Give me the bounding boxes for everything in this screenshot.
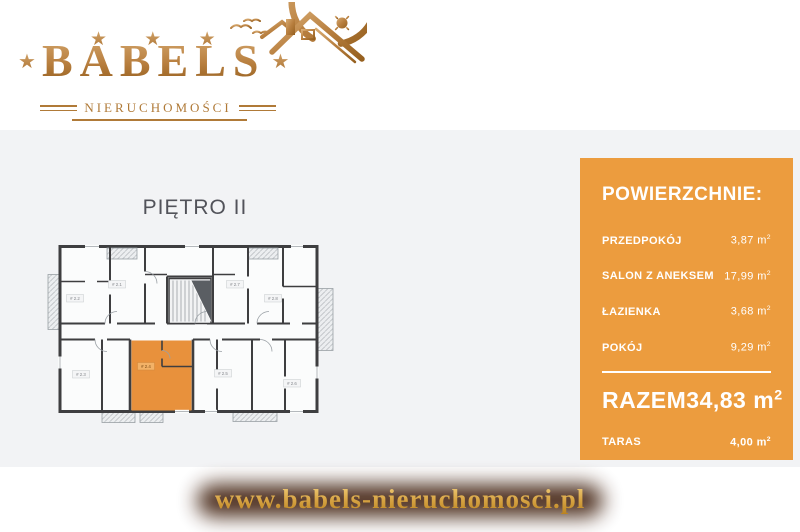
- area-value: 9,29 m2: [731, 341, 771, 354]
- terrace-value: 4,00 m2: [730, 436, 771, 449]
- terrace-label: TARAS: [602, 436, 641, 448]
- room-label: # 2.7: [230, 282, 240, 287]
- sun-icon: [333, 14, 351, 32]
- area-value: 3,87 m2: [731, 234, 771, 247]
- highlighted-apartment[interactable]: [132, 341, 192, 411]
- website-url[interactable]: www.babels-nieruchomosci.pl: [205, 482, 596, 517]
- total-value: 34,83 m2: [686, 387, 782, 414]
- area-label: PRZEDPOKÓJ: [602, 235, 682, 247]
- area-label: ŁAZIENKA: [602, 306, 661, 318]
- room-label: # 2.2: [70, 296, 80, 301]
- floor-plan: # 2.2 # 2.1 # 2.7 # 2.8 # 2.3 # 2.4 # 2.…: [45, 224, 345, 429]
- room-label: # 2.3: [76, 372, 86, 377]
- room-label: # 2.1: [112, 282, 122, 287]
- area-value: 17,99 m2: [724, 270, 771, 283]
- footer: www.babels-nieruchomosci.pl: [0, 467, 800, 532]
- floor-plan-drawing: # 2.2 # 2.1 # 2.7 # 2.8 # 2.3 # 2.4 # 2.…: [45, 224, 345, 429]
- double-line-left: [40, 105, 77, 111]
- area-row: POKÓJ 9,29 m2: [602, 341, 771, 354]
- content-band: PIĘTRO II: [0, 130, 800, 467]
- room-label: # 2.5: [218, 371, 228, 376]
- area-value: 3,68 m2: [731, 305, 771, 318]
- area-row: SALON Z ANEKSEM 17,99 m2: [602, 270, 771, 283]
- brand-subtitle: NIERUCHOMOŚCI: [84, 100, 231, 116]
- room-label: # 2.8: [268, 296, 278, 301]
- total-row: RAZEM 34,83 m2: [602, 387, 771, 414]
- floor-title: PIĘTRO II: [45, 196, 345, 220]
- room-label: # 2.6: [287, 381, 297, 386]
- chimney-icon: [286, 19, 295, 35]
- area-row: ŁAZIENKA 3,68 m2: [602, 305, 771, 318]
- star-left-icon: ★: [18, 49, 36, 74]
- areas-panel-title: POWIERZCHNIE:: [602, 184, 771, 206]
- page: ★ ★ ★ ★ BABELS ★ NIERUCHOMOŚCI: [0, 0, 800, 532]
- area-row: PRZEDPOKÓJ 3,87 m2: [602, 234, 771, 247]
- birds-icon: [231, 20, 269, 34]
- area-label: POKÓJ: [602, 342, 643, 354]
- header: ★ ★ ★ ★ BABELS ★ NIERUCHOMOŚCI: [0, 0, 800, 130]
- terrace-row: TARAS 4,00 m2: [602, 436, 771, 449]
- staircase: [169, 279, 211, 324]
- areas-panel: POWIERZCHNIE: PRZEDPOKÓJ 3,87 m2 SALON Z…: [580, 158, 793, 460]
- agency-logo: ★ ★ ★ ★ BABELS ★ NIERUCHOMOŚCI: [12, 0, 372, 130]
- panel-divider: [602, 371, 771, 373]
- area-rows: PRZEDPOKÓJ 3,87 m2 SALON Z ANEKSEM 17,99…: [602, 234, 771, 354]
- area-label: SALON Z ANEKSEM: [602, 270, 714, 282]
- house-logo-icon: [217, 2, 367, 130]
- total-label: RAZEM: [602, 387, 686, 414]
- room-label-highlighted: # 2.4: [141, 364, 151, 369]
